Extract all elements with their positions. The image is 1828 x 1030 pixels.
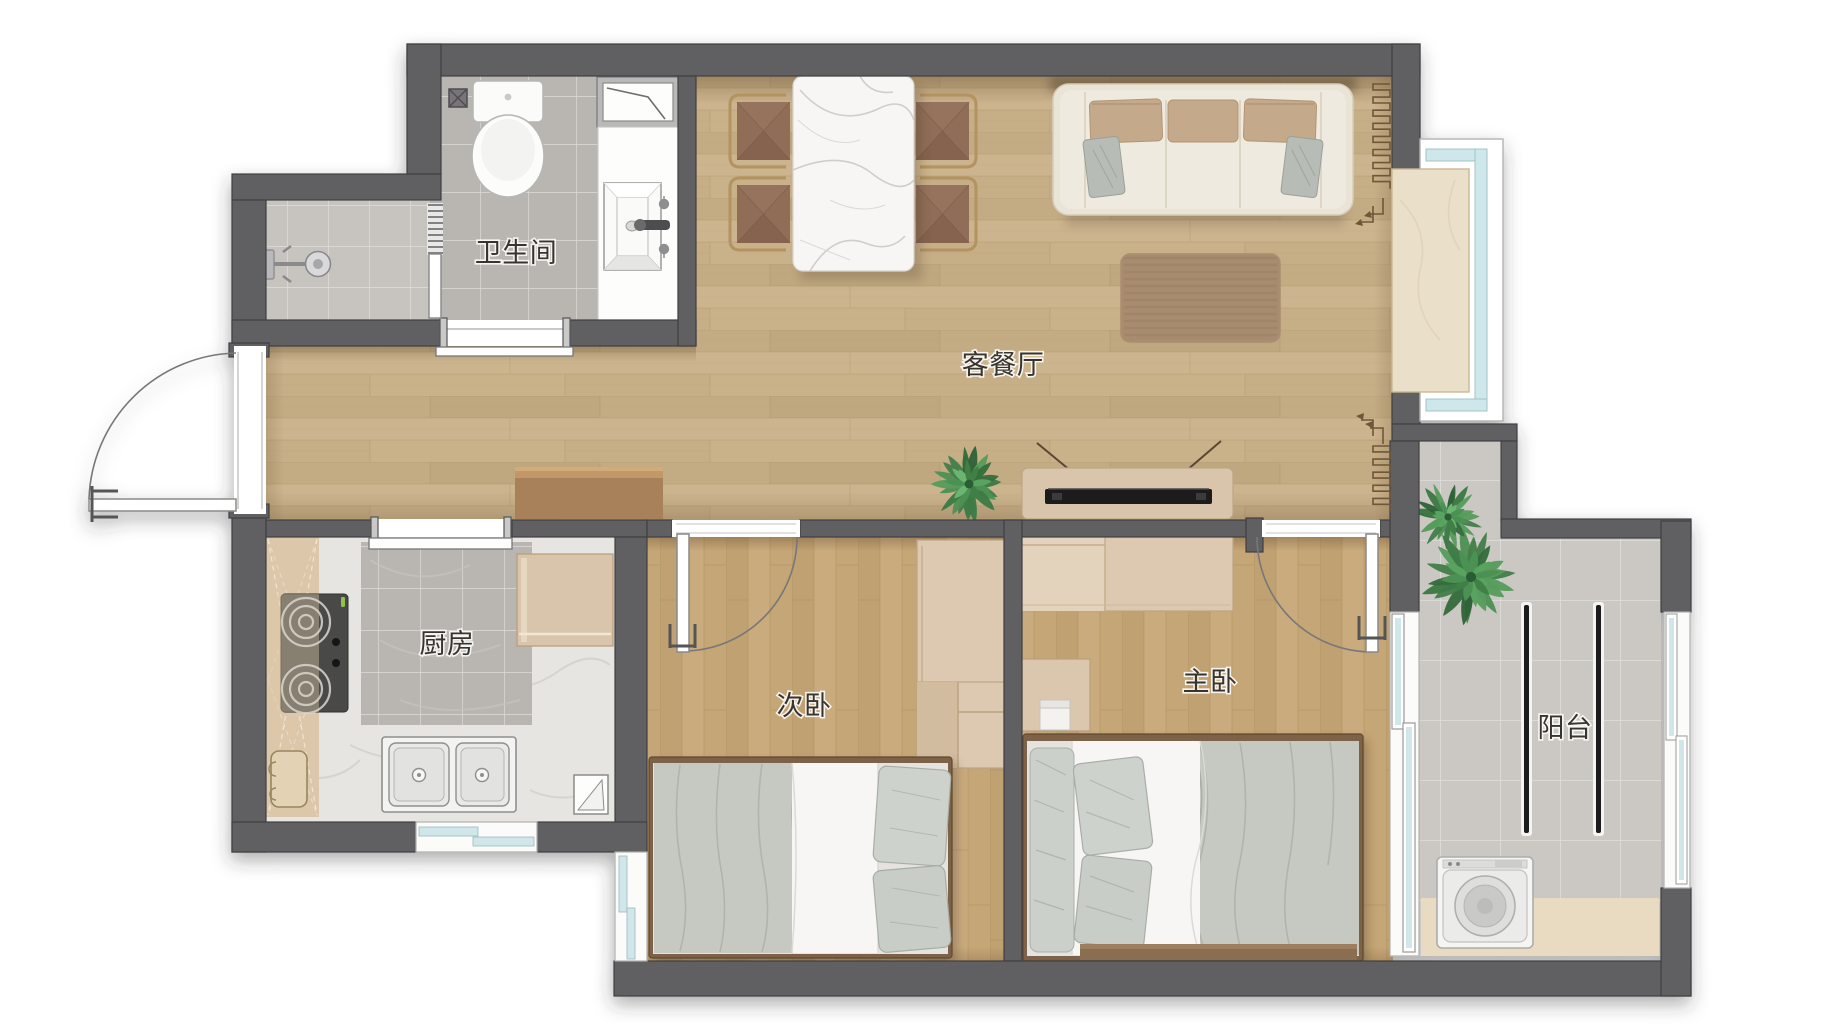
svg-text:卫生间: 卫生间 bbox=[475, 238, 558, 268]
svg-text:次卧: 次卧 bbox=[777, 691, 832, 721]
svg-text:阳台: 阳台 bbox=[1538, 713, 1593, 743]
svg-text:厨房: 厨房 bbox=[420, 629, 475, 659]
svg-text:客餐厅: 客餐厅 bbox=[962, 350, 1045, 380]
svg-text:主卧: 主卧 bbox=[1183, 667, 1238, 697]
